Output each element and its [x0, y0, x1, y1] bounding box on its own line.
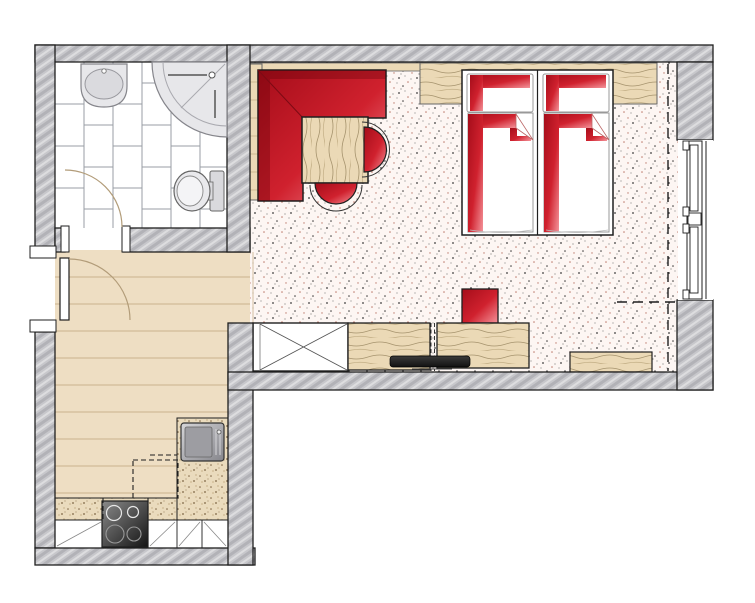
bathroom-door-jamb-right: [122, 226, 130, 252]
pillow-red-band-left: [470, 75, 483, 111]
entry-door-leaf: [60, 258, 69, 320]
wall-right-lower-block: [677, 300, 713, 390]
wall-bedroom-bottom: [228, 372, 713, 390]
shower-head: [209, 72, 215, 78]
bed-left: [467, 74, 533, 233]
dining-table: [302, 117, 368, 183]
window-handle: [683, 141, 689, 150]
wardrobe: [253, 323, 348, 371]
bathroom-door-jamb-left: [61, 226, 69, 252]
window-sash-upper: [690, 145, 698, 211]
duvet-red-band-left: [468, 114, 483, 232]
wall-left-upper: [35, 45, 55, 250]
window-handle: [683, 207, 689, 216]
wall-top: [35, 45, 713, 62]
window-handle: [683, 290, 689, 299]
bed-right: [543, 74, 609, 233]
sink-faucet: [217, 430, 221, 434]
stool: [462, 289, 498, 323]
window-handle: [683, 224, 689, 233]
toilet-seat: [177, 176, 203, 206]
window-mullion: [688, 213, 701, 225]
kitchen-sink: [181, 423, 224, 461]
wall-bottom-left: [35, 548, 255, 565]
toilet: [174, 171, 224, 211]
window-bench: [570, 352, 652, 372]
washbasin: [81, 64, 127, 107]
wall-kitchen-right: [228, 323, 253, 565]
washbasin-faucet: [102, 69, 106, 73]
floor-plan: [0, 0, 755, 603]
tv: [390, 356, 470, 367]
twin-beds: [462, 70, 613, 235]
pillow-red-band-left: [546, 75, 559, 111]
entry-door-jamb-bottom: [30, 320, 56, 332]
window-sash-lower: [690, 227, 698, 293]
wall-bath-right: [227, 45, 250, 252]
duvet-red-band-left: [544, 114, 559, 232]
entry-door-jamb-top: [30, 246, 56, 258]
wall-left-lower: [35, 332, 55, 548]
sink-basin: [185, 427, 212, 457]
floor-plan-drawing: [0, 0, 755, 603]
wall-right-upper-block: [677, 62, 713, 140]
